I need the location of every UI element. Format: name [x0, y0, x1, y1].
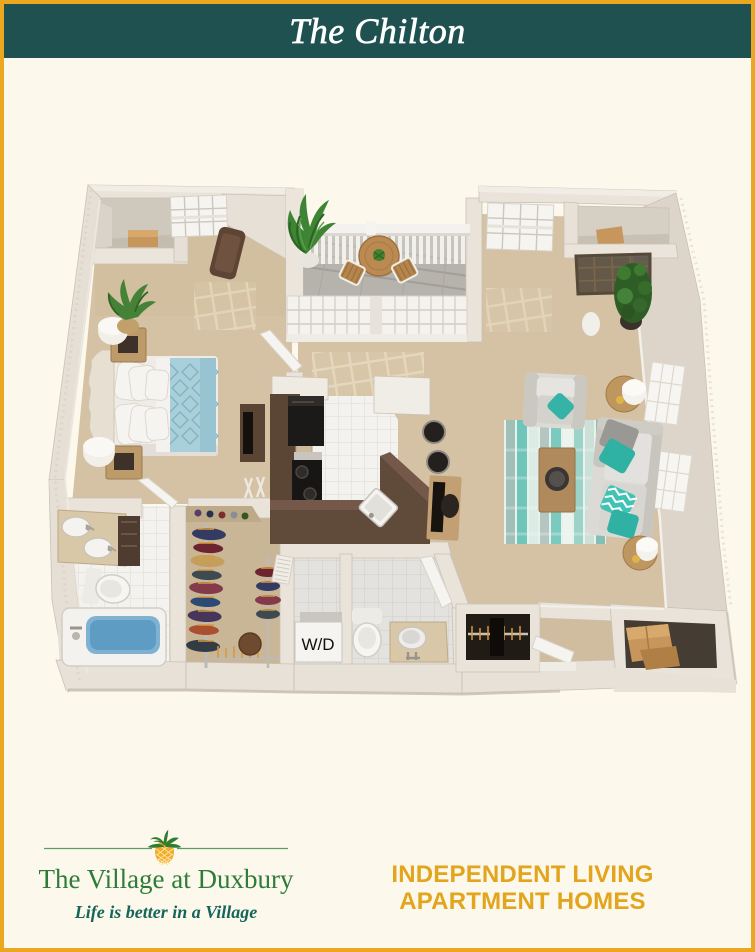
svg-text:W/D: W/D	[301, 635, 334, 654]
